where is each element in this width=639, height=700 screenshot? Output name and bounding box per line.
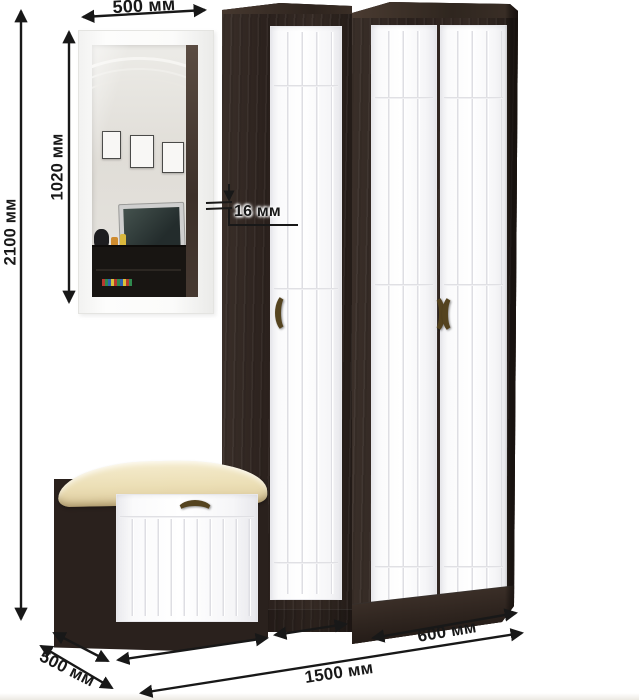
wall-mirror [78, 30, 214, 314]
door-groove-panel [121, 519, 253, 616]
door-groove [274, 85, 338, 87]
dimension-label-total-width: 1500 мм [303, 658, 374, 688]
door-handle [275, 294, 296, 332]
door-groove [274, 562, 338, 564]
wardrobe-top-panel [352, 2, 518, 18]
dimension-label-panel-thickness: 16 мм [234, 203, 281, 221]
door-groove [375, 566, 433, 568]
glass-sheen [92, 45, 198, 297]
door-groove [375, 97, 433, 99]
door-groove [444, 284, 503, 286]
two-door-wardrobe [352, 2, 518, 645]
dimension-label-mirror-height: 1020 мм [49, 133, 68, 200]
door-handle [177, 500, 213, 522]
furniture-diagram: 500 мм 2100 мм 1020 мм 16 мм 600 мм 1500… [0, 0, 639, 700]
dimension-label-mirror-width: 500 мм [112, 0, 176, 18]
mirror-glass [92, 45, 198, 297]
door-groove [444, 97, 503, 99]
door-groove [444, 566, 503, 568]
floor-shade [0, 693, 639, 700]
door-groove [375, 284, 433, 286]
door-groove [274, 288, 338, 290]
wardrobe-side-panel [505, 2, 518, 645]
wardrobe-top-panel [222, 3, 352, 14]
shoe-bench [52, 459, 270, 655]
door-handle [442, 295, 463, 333]
dimension-label-total-height: 2100 мм [2, 198, 21, 265]
